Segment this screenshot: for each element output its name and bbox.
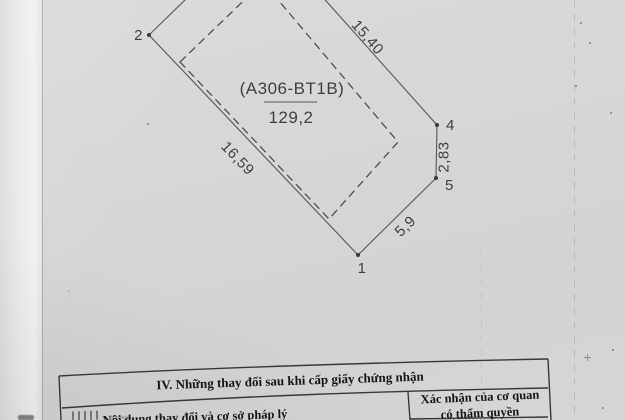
partial-text-fragment	[72, 410, 102, 420]
cadastral-diagram: 2 4 5 1 15,40 16,59 2,83 5,9 (A306-BT1B)…	[0, 0, 625, 420]
dust-speck	[602, 407, 604, 409]
scanned-certificate-page: 2 4 5 1 15,40 16,59 2,83 5,9 (A306-BT1B)…	[0, 0, 625, 420]
table-column-divider	[408, 392, 410, 420]
partial-text-fragment	[110, 416, 130, 419]
dust-speck	[580, 22, 582, 24]
table-right-border	[548, 359, 551, 420]
vertex-dot-1	[356, 253, 360, 257]
vertex-label-5: 5	[445, 177, 454, 194]
dust-speck	[610, 112, 612, 114]
vertex-label-2: 2	[134, 27, 143, 44]
dust-speck	[612, 349, 614, 351]
plus-artifact	[584, 354, 591, 361]
edge-length-sw: 16,59	[217, 138, 257, 179]
vertex-label-1: 1	[358, 260, 367, 277]
vertex-dot-2	[147, 33, 151, 37]
edge-length-ne: 15,40	[348, 17, 387, 58]
parcel-id-label: (A306-BT1B)	[240, 79, 345, 98]
vertex-label-4: 4	[446, 117, 455, 134]
dust-speck	[68, 290, 70, 292]
dust-speck	[575, 85, 577, 87]
dust-speck	[147, 123, 149, 125]
dust-speck	[589, 42, 591, 44]
vertex-dot-4	[435, 123, 439, 127]
vertex-dot-5	[434, 176, 438, 180]
parcel-area-value: 129,2	[268, 108, 313, 127]
edge-length-e: 2,83	[435, 141, 452, 172]
parcel-boundary	[149, 0, 437, 255]
edge-length-se: 5,9	[392, 213, 420, 241]
partial-text-fragment	[18, 415, 34, 420]
